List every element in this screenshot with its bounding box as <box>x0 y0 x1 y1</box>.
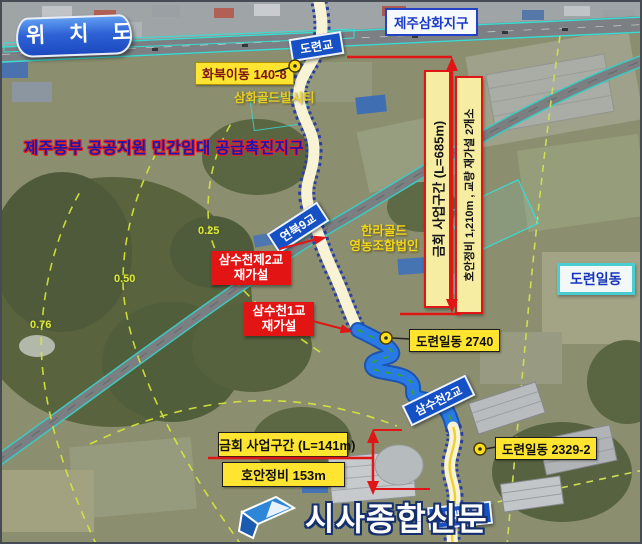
location-marker-2329 <box>474 443 486 455</box>
lot-leader-lines <box>275 67 496 449</box>
location-map: 위 치 도 제주삼화지구 도련교 화북이동 140-8 삼화골드빌시티 제주동부… <box>0 0 642 544</box>
location-marker-2740 <box>380 332 392 344</box>
main-section-bracket <box>347 57 461 314</box>
location-marker-hwabuk <box>289 60 301 72</box>
small-section-bracket <box>208 429 430 495</box>
samsu1-leader-arrow <box>305 319 353 333</box>
annotation-overlay <box>2 2 642 544</box>
news-watermark-text: 시사종합신문 <box>305 494 488 540</box>
newspaper-logo-icon <box>238 494 296 540</box>
news-watermark: 시사종합신문 <box>238 494 488 540</box>
samsu2-leader-arrow <box>279 236 327 249</box>
